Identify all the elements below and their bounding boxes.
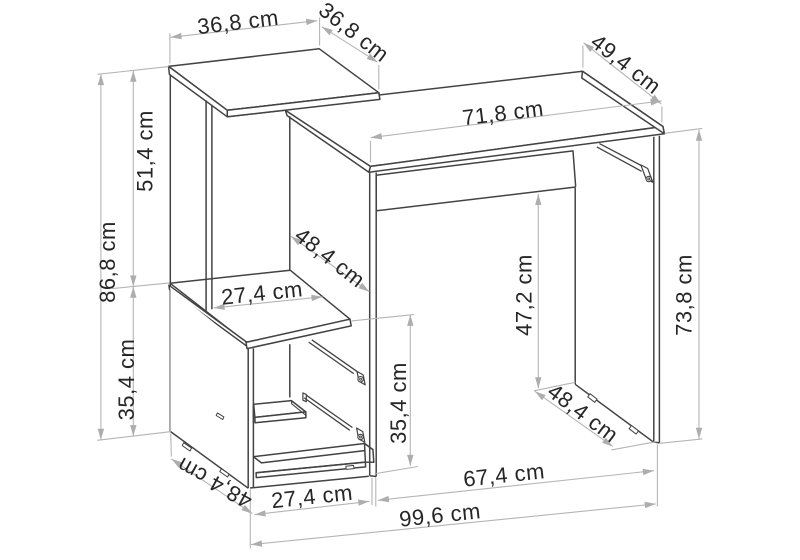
svg-text:35,4 cm: 35,4 cm [114,339,139,421]
svg-text:51,4 cm: 51,4 cm [133,110,158,192]
svg-text:35,4 cm: 35,4 cm [386,362,411,444]
svg-text:86,8 cm: 86,8 cm [95,221,120,303]
svg-text:47,2 cm: 47,2 cm [512,254,537,336]
svg-text:73,8 cm: 73,8 cm [672,254,697,336]
